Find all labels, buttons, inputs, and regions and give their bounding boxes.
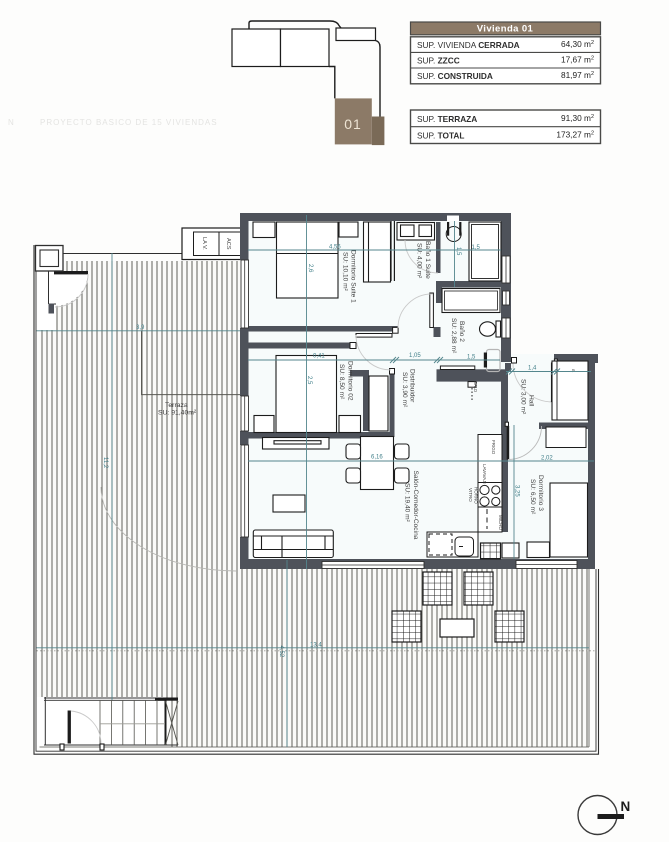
svg-text:4,52: 4,52 (278, 646, 284, 658)
svg-text:173,27 m2: 173,27 m2 (556, 130, 594, 140)
svg-text:17,67 m2: 17,67 m2 (561, 55, 594, 65)
svg-text:SU: 91,40m²: SU: 91,40m² (158, 410, 197, 417)
svg-text:SUP. CONSTRUIDA: SUP. CONSTRUIDA (417, 71, 493, 81)
svg-text:Dormitorio Suite 1: Dormitorio Suite 1 (350, 250, 357, 303)
svg-text:Distribuidor: Distribuidor (409, 369, 416, 403)
svg-text:3,25: 3,25 (514, 485, 520, 497)
svg-text:1,5: 1,5 (455, 247, 461, 256)
svg-text:SU: 6,50 m²: SU: 6,50 m² (529, 479, 536, 515)
svg-text:SU: 8,50 m²: SU: 8,50 m² (338, 364, 345, 400)
svg-text:01: 01 (344, 116, 362, 132)
svg-text:91,30 m2: 91,30 m2 (561, 113, 594, 123)
svg-text:1,4: 1,4 (528, 366, 537, 372)
svg-text:Dormitorio 3: Dormitorio 3 (537, 475, 544, 511)
svg-text:ACS: ACS (225, 238, 231, 250)
svg-text:81,97 m2: 81,97 m2 (561, 70, 594, 80)
svg-text:SUP. TERRAZA: SUP. TERRAZA (417, 114, 477, 124)
svg-text:Hall: Hall (528, 395, 535, 407)
svg-text:FRIGO: FRIGO (491, 440, 496, 455)
svg-text:SU: 3,90 m²: SU: 3,90 m² (401, 372, 408, 408)
svg-text:1,5: 1,5 (472, 245, 481, 251)
svg-text:N: N (621, 799, 631, 814)
svg-text:SUP. ZZCC: SUP. ZZCC (417, 56, 460, 66)
svg-text:2,02: 2,02 (541, 456, 553, 462)
svg-text:LAVAVAJI: LAVAVAJI (482, 464, 487, 484)
svg-text:LA V.: LA V. (201, 237, 207, 250)
svg-text:0,41: 0,41 (313, 354, 325, 360)
svg-text:CALD: CALD (473, 381, 478, 392)
svg-text:13,4: 13,4 (310, 643, 322, 649)
svg-text:Vivienda 01: Vivienda 01 (477, 24, 534, 35)
svg-text:6,16: 6,16 (371, 455, 383, 461)
svg-text:PROYECTO BASICO DE 15 VIVIENDA: PROYECTO BASICO DE 15 VIVIENDAS (40, 118, 218, 127)
svg-text:3,9: 3,9 (136, 325, 145, 331)
svg-text:1,5: 1,5 (467, 355, 476, 361)
svg-text:SUP. TOTAL: SUP. TOTAL (417, 131, 465, 141)
svg-text:SU: 19,40 m²: SU: 19,40 m² (404, 483, 411, 523)
svg-text:MICRO: MICRO (498, 515, 503, 530)
svg-text:Dormitorio 02: Dormitorio 02 (347, 361, 354, 401)
svg-text:HORNO: HORNO (474, 487, 479, 504)
svg-text:11,2: 11,2 (102, 457, 108, 469)
svg-text:SU: 4,00 m²: SU: 4,00 m² (416, 243, 423, 279)
svg-text:Baño 1 Suite: Baño 1 Suite (424, 241, 431, 279)
svg-text:SU: 10,10 m²: SU: 10,10 m² (342, 252, 349, 292)
svg-text:1,05: 1,05 (409, 353, 421, 359)
svg-text:Baño 2: Baño 2 (458, 321, 465, 342)
svg-text:VITRO: VITRO (468, 488, 473, 502)
svg-text:4,56: 4,56 (329, 245, 341, 251)
svg-text:64,30 m2: 64,30 m2 (561, 39, 594, 49)
svg-text:2,6: 2,6 (307, 264, 313, 273)
svg-text:Salón-Comedor-Cocina: Salón-Comedor-Cocina (412, 471, 419, 540)
svg-text:N: N (8, 118, 14, 127)
svg-text:SUP. VIVIENDA CERRADA: SUP. VIVIENDA CERRADA (417, 40, 520, 50)
svg-text:Terraza: Terraza (165, 402, 188, 409)
svg-text:SU: 2,88 m²: SU: 2,88 m² (450, 318, 457, 354)
svg-text:SU: 3,00 m²: SU: 3,00 m² (520, 379, 527, 415)
svg-text:2,5: 2,5 (306, 376, 312, 385)
